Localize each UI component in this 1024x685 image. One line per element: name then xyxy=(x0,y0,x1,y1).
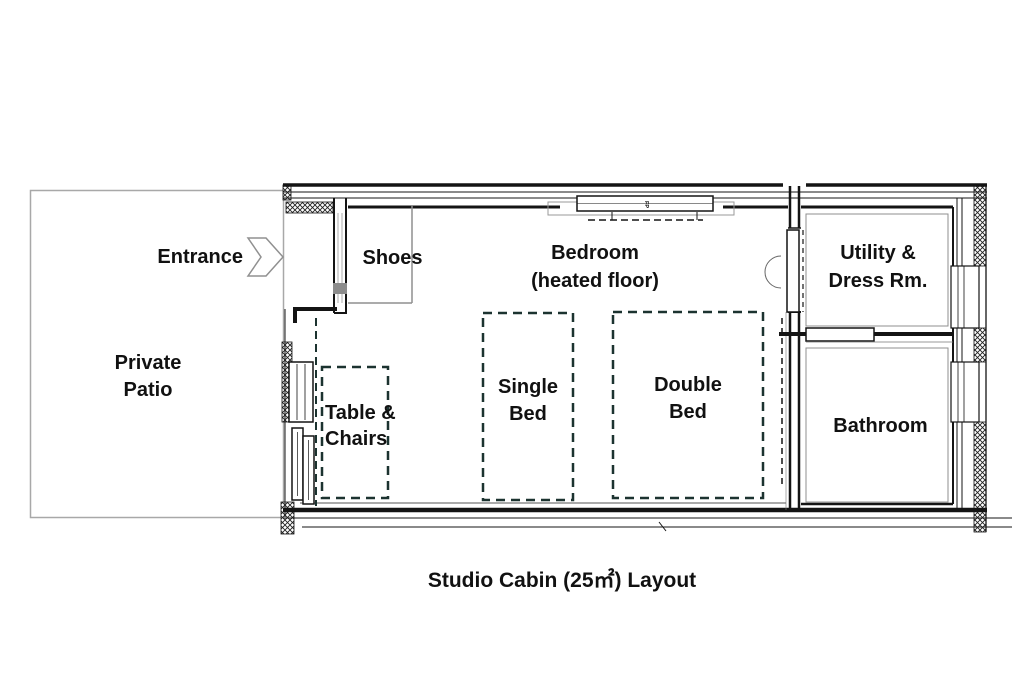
bathroom-window xyxy=(951,362,979,422)
room-label-shoes: Shoes xyxy=(350,245,435,272)
vestibule-wall xyxy=(333,198,347,313)
room-label-bedroom: Bedroom (heated floor) xyxy=(495,239,695,295)
private-patio-label: Private Patio xyxy=(93,350,203,404)
window-marker-label: FP xyxy=(643,201,649,208)
bedroom-name: Bedroom xyxy=(495,239,695,267)
bedroom-note: (heated floor) xyxy=(495,267,695,295)
plan-title: Studio Cabin (25㎡) Layout xyxy=(312,567,812,594)
door-stop-block xyxy=(333,283,347,294)
bedroom-window: FP xyxy=(548,196,734,220)
chevron-right-icon xyxy=(248,238,283,276)
door-swing-arc xyxy=(765,256,781,288)
furniture-label-single-bed: Single Bed xyxy=(488,374,568,428)
patio-sliding-door xyxy=(292,428,314,504)
bathroom-door xyxy=(806,328,874,341)
room-label-bathroom: Bathroom xyxy=(808,413,953,440)
entrance-label: Entrance xyxy=(118,244,243,271)
outer-walls xyxy=(283,184,1012,532)
bathroom-divider-wall xyxy=(779,328,953,342)
floor-plan-page: FP xyxy=(0,0,1024,685)
furniture-label-table-chairs: Table & Chairs xyxy=(325,400,420,452)
patio-window xyxy=(289,362,313,422)
utility-door xyxy=(765,230,803,312)
utility-window xyxy=(951,266,979,328)
furniture-label-double-bed: Double Bed xyxy=(643,372,733,426)
room-label-utility: Utility & Dress Rm. xyxy=(822,239,934,295)
